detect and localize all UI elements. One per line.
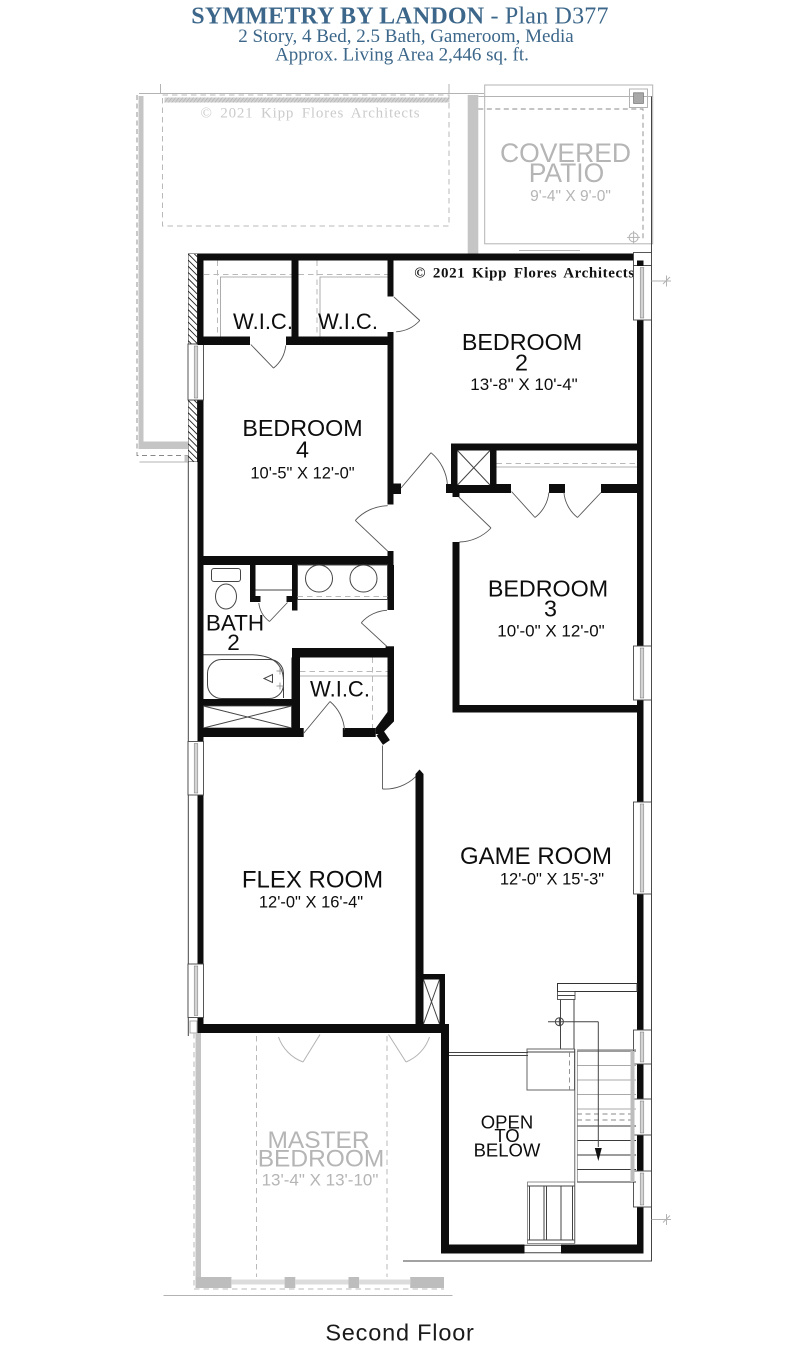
svg-text:© 2021 Kipp Flores Architects: © 2021 Kipp Flores Architects <box>414 265 635 281</box>
svg-text:2: 2 <box>515 350 528 376</box>
svg-text:BEDROOM: BEDROOM <box>258 1146 385 1173</box>
svg-text:13'-4" X 13'-10": 13'-4" X 13'-10" <box>262 1171 379 1190</box>
svg-text:2: 2 <box>227 630 240 655</box>
svg-text:GAME ROOM: GAME ROOM <box>460 843 612 870</box>
svg-text:Second Floor: Second Floor <box>325 1320 474 1346</box>
svg-text:10'-0" X 12'-0": 10'-0" X 12'-0" <box>497 622 604 641</box>
svg-text:PATIO: PATIO <box>529 158 605 188</box>
svg-text:BELOW: BELOW <box>474 1140 541 1161</box>
svg-text:W.I.C.: W.I.C. <box>310 677 370 702</box>
svg-text:W.I.C.: W.I.C. <box>233 309 293 334</box>
svg-text:W.I.C.: W.I.C. <box>318 309 378 334</box>
svg-text:9'-4" X 9'-0": 9'-4" X 9'-0" <box>530 188 611 205</box>
svg-text:FLEX ROOM: FLEX ROOM <box>242 867 383 894</box>
svg-text:Approx. Living Area 2,446 sq.: Approx. Living Area 2,446 sq. ft. <box>275 45 529 66</box>
svg-text:3: 3 <box>544 596 557 622</box>
svg-text:12'-0" X 16'-4": 12'-0" X 16'-4" <box>259 894 363 912</box>
svg-text:12'-0" X 15'-3": 12'-0" X 15'-3" <box>500 871 604 889</box>
svg-text:© 2021 Kipp Flores Architects: © 2021 Kipp Flores Architects <box>201 106 421 122</box>
svg-text:4: 4 <box>296 437 309 463</box>
svg-text:13'-8" X 10'-4": 13'-8" X 10'-4" <box>470 375 577 394</box>
svg-text:10'-5" X 12'-0": 10'-5" X 12'-0" <box>250 465 354 483</box>
